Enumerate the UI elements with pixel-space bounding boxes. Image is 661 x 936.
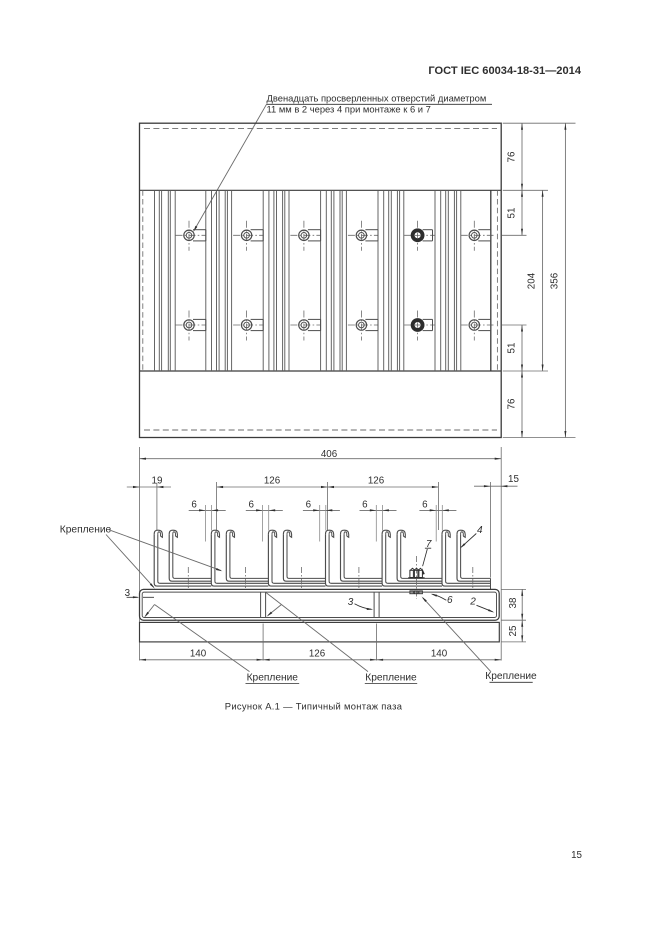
svg-text:11 мм в 2 через 4 при монтаже: 11 мм в 2 через 4 при монтаже к 6 и 7: [267, 104, 431, 115]
svg-text:3: 3: [348, 597, 354, 608]
svg-text:Крепление: Крепление: [60, 524, 112, 535]
svg-text:Крепление: Крепление: [247, 672, 299, 683]
svg-text:25: 25: [508, 625, 519, 636]
svg-text:6: 6: [248, 499, 254, 510]
svg-text:Крепление: Крепление: [485, 671, 537, 682]
svg-text:ГОСТ IEC 60034-18-31—2014: ГОСТ IEC 60034-18-31—2014: [428, 65, 581, 77]
svg-text:51: 51: [507, 343, 518, 354]
svg-text:19: 19: [152, 476, 163, 487]
svg-text:6: 6: [447, 595, 453, 606]
svg-text:406: 406: [321, 449, 338, 460]
svg-text:Двенадцать просверленных отвер: Двенадцать просверленных отверстий диаме…: [267, 93, 487, 104]
svg-text:38: 38: [508, 597, 519, 608]
svg-text:126: 126: [309, 649, 326, 660]
svg-text:15: 15: [571, 850, 582, 861]
svg-text:204: 204: [527, 272, 538, 289]
svg-text:15: 15: [508, 474, 519, 485]
svg-text:76: 76: [507, 398, 518, 409]
svg-text:140: 140: [190, 649, 207, 660]
svg-text:140: 140: [431, 649, 448, 660]
svg-text:126: 126: [264, 476, 281, 487]
svg-text:6: 6: [422, 499, 428, 510]
svg-text:356: 356: [550, 272, 561, 289]
svg-text:76: 76: [507, 151, 518, 162]
svg-text:Рисунок А.1 — Типичный монтаж: Рисунок А.1 — Типичный монтаж паза: [225, 701, 403, 712]
svg-text:6: 6: [306, 499, 312, 510]
svg-text:51: 51: [507, 208, 518, 219]
svg-text:126: 126: [368, 476, 385, 487]
svg-text:6: 6: [191, 499, 197, 510]
svg-text:Крепление: Крепление: [365, 672, 417, 683]
svg-text:6: 6: [362, 499, 368, 510]
svg-text:2: 2: [469, 597, 476, 608]
svg-text:4: 4: [477, 525, 483, 536]
